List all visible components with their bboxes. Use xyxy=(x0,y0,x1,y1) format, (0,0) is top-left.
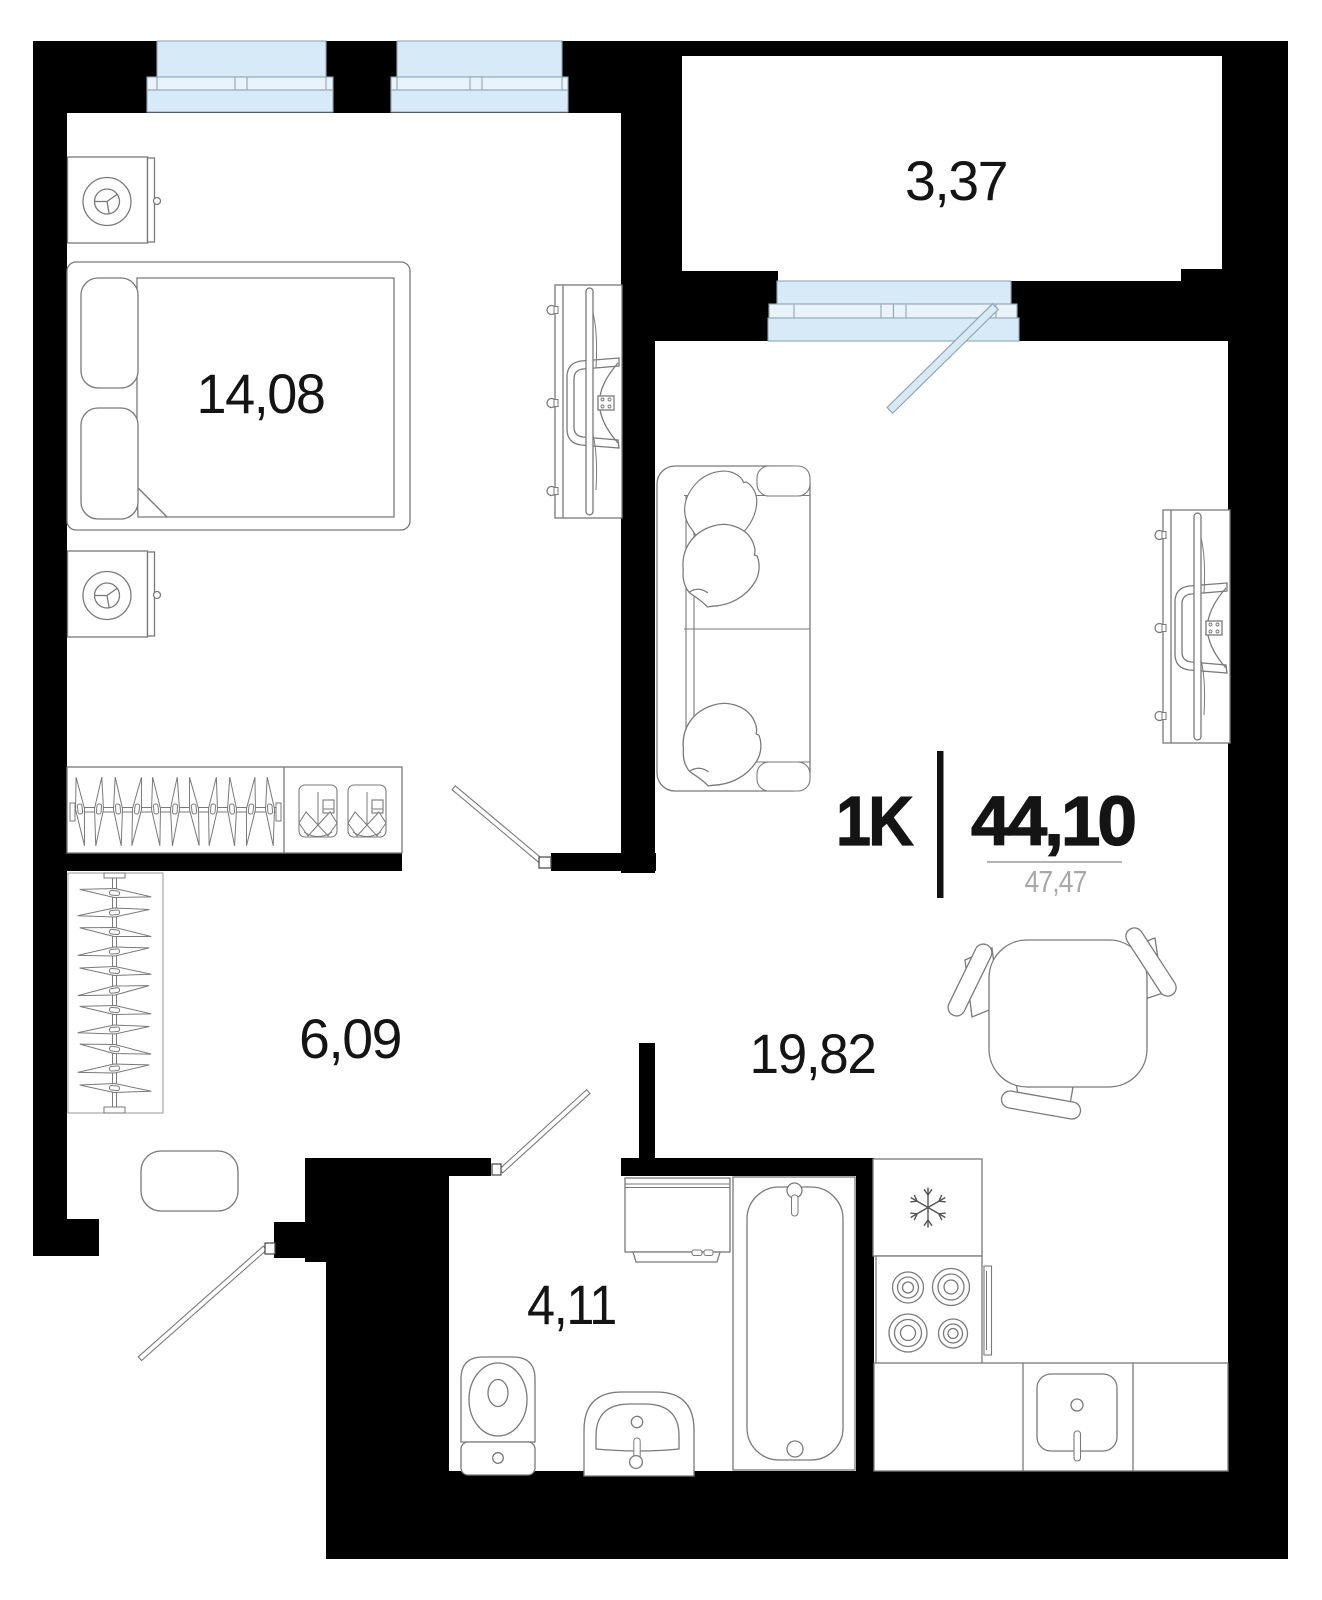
svg-text:44,10: 44,10 xyxy=(971,782,1135,860)
svg-text:19,82: 19,82 xyxy=(750,1022,876,1085)
svg-text:14,08: 14,08 xyxy=(197,362,325,425)
svg-text:6,09: 6,09 xyxy=(299,1007,401,1070)
svg-text:1K: 1K xyxy=(836,782,913,860)
svg-text:3,37: 3,37 xyxy=(905,149,1007,212)
svg-text:4,11: 4,11 xyxy=(527,1273,616,1336)
svg-text:47,47: 47,47 xyxy=(1025,864,1087,899)
